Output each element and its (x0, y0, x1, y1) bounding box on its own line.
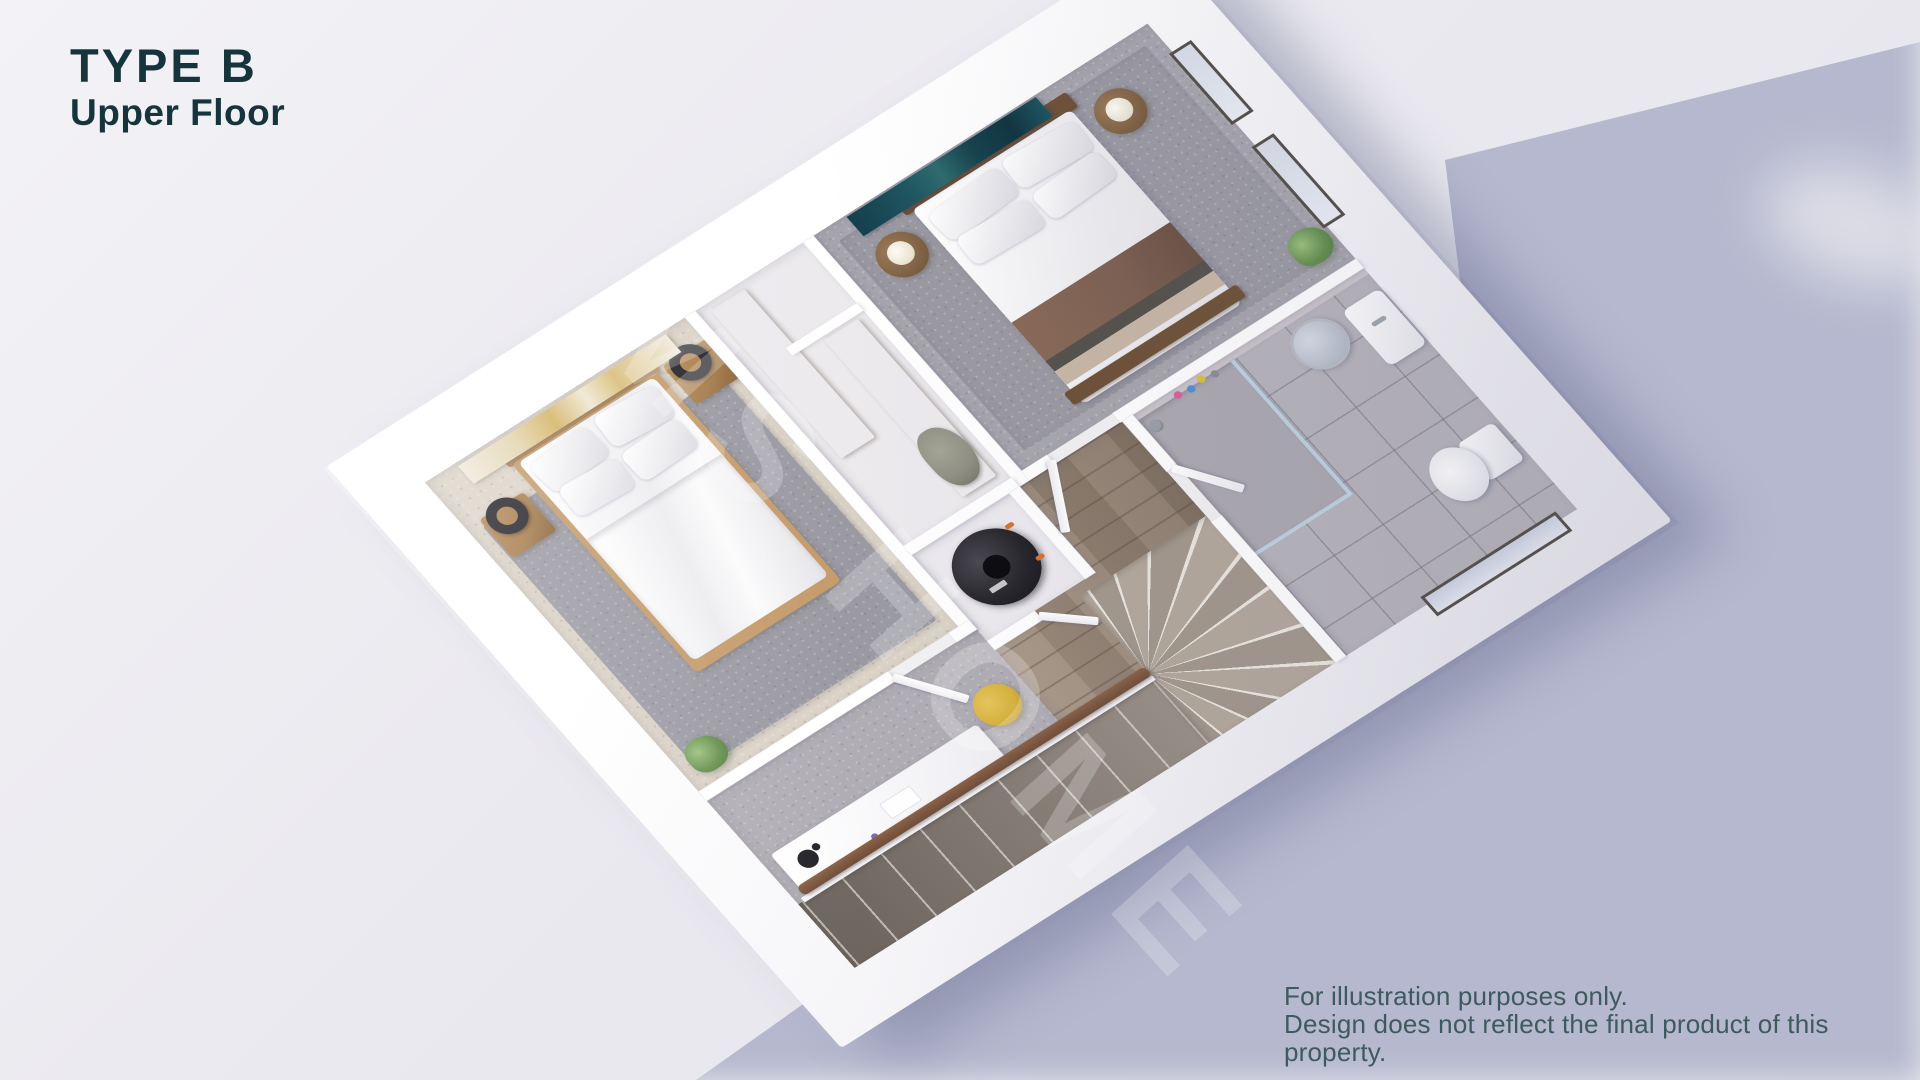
unit-type-title: TYPE B (70, 40, 285, 92)
disclaimer-line-1: For illustration purposes only. (1284, 982, 1920, 1010)
floorplan-canvas: MS HOME TYPE B Upper Floor For illustrat… (0, 0, 1920, 1080)
disclaimer-line-2: Design does not reflect the final produc… (1284, 1010, 1920, 1066)
floor-subtitle: Upper Floor (70, 92, 285, 135)
disclaimer: For illustration purposes only. Design d… (1284, 982, 1920, 1066)
title-block: TYPE B Upper Floor (70, 40, 285, 134)
